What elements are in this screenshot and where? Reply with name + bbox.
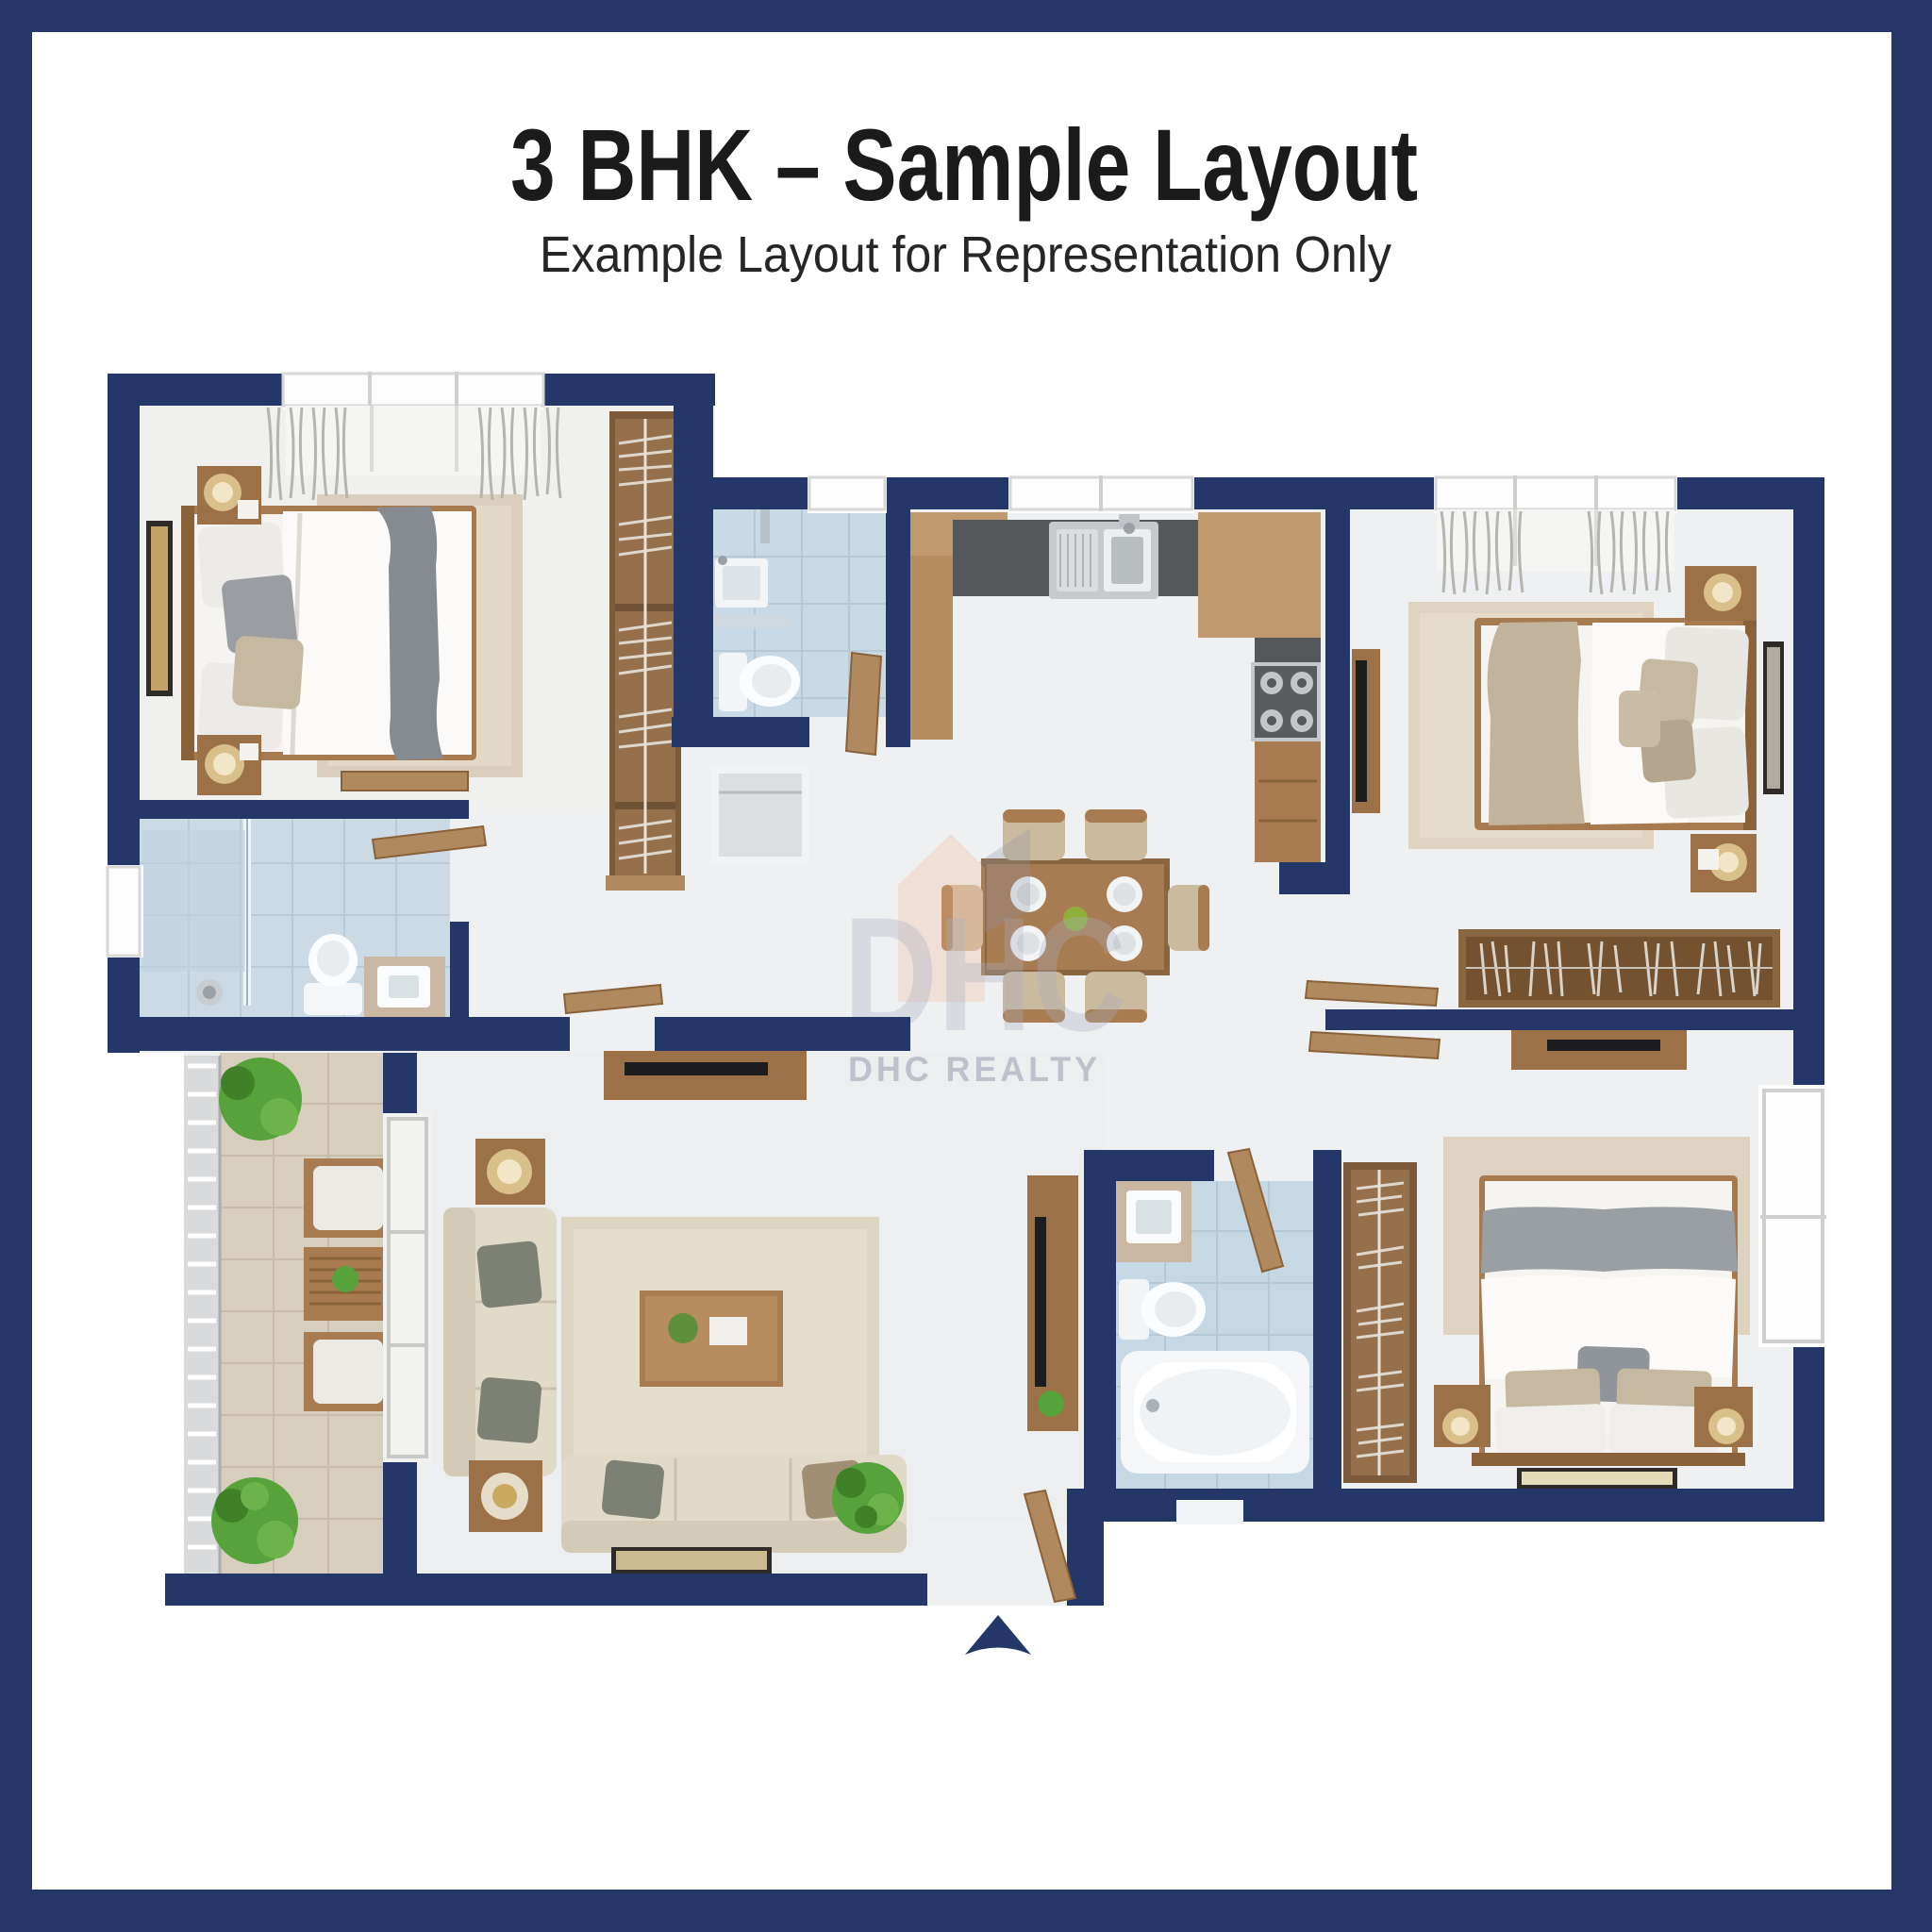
svg-text:DHC REALTY: DHC REALTY bbox=[848, 1050, 1101, 1089]
svg-text:3 BHK – Sample Layout: 3 BHK – Sample Layout bbox=[510, 108, 1418, 222]
svg-text:Example Layout for Representat: Example Layout for Representation Only bbox=[540, 226, 1391, 283]
